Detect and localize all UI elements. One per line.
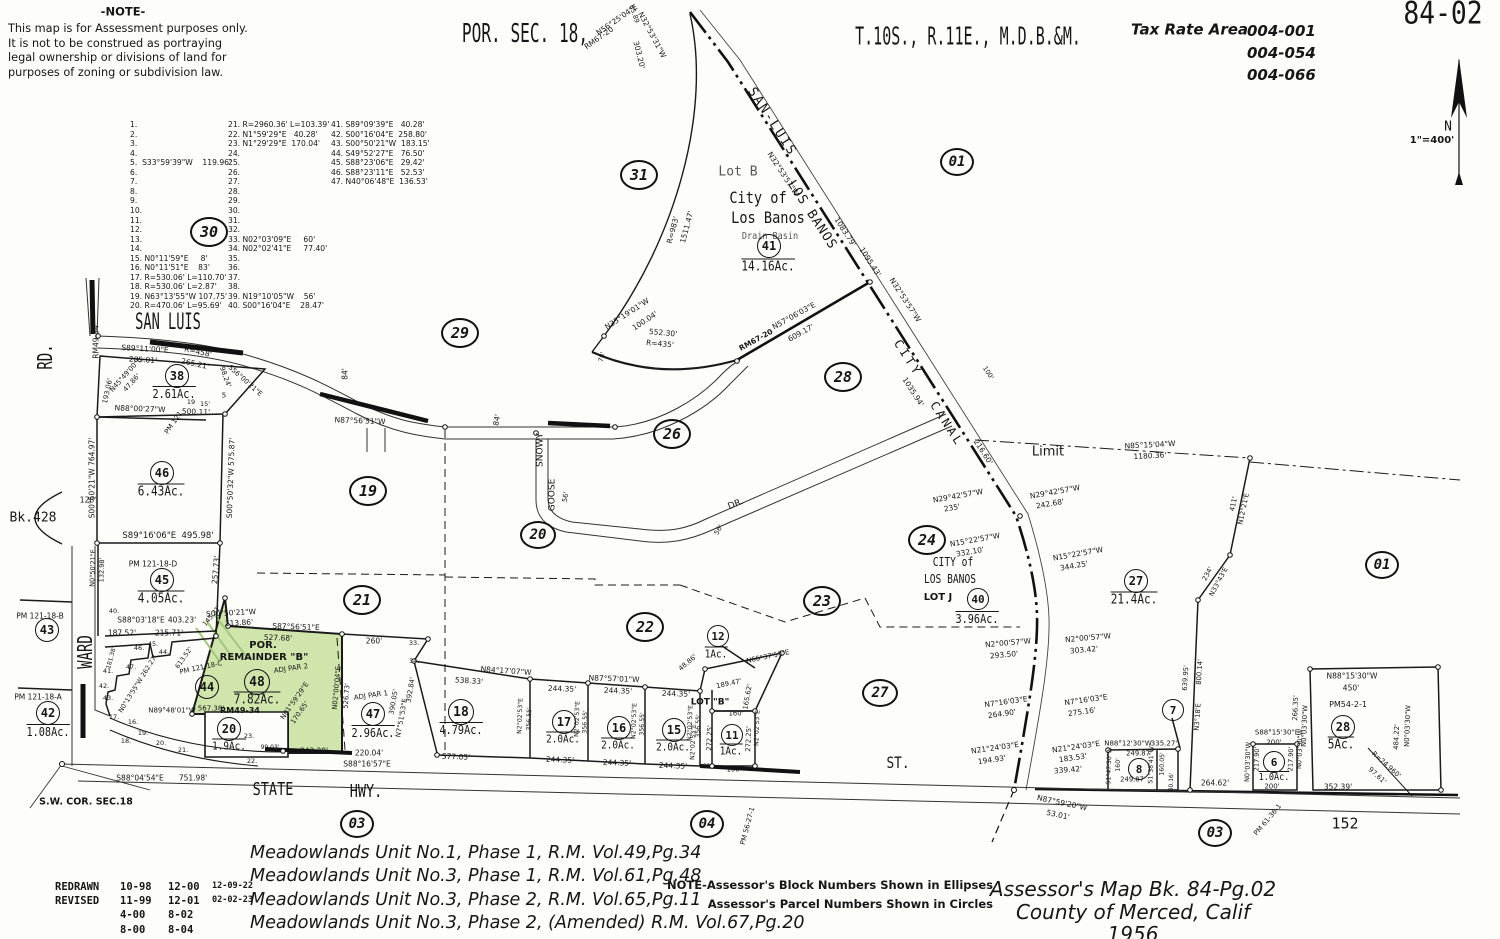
curve-table-row: 16. N0°11'51"E 83' <box>130 264 210 272</box>
map-label: 577.05' <box>442 753 471 761</box>
map-label: 244.35' <box>546 756 575 764</box>
map-label: 2.61Ac. <box>153 386 196 400</box>
map-label: 113.86' <box>225 619 254 628</box>
curve-table-row: 44. S49°52'27"E 76.50' <box>331 150 425 158</box>
curve-table-row: 45. S88°23'06"E 29.42' <box>331 159 425 167</box>
map-label: PM 121-18-A <box>14 693 62 701</box>
curve-table-row: 8. <box>130 188 137 196</box>
note-heading: -NOTE- <box>101 6 146 18</box>
map-label: Bk.428 <box>10 512 57 525</box>
parcel-number-circle: 6 <box>1263 751 1285 773</box>
curve-table-row: 27. <box>228 178 240 186</box>
revision-cell: REDRAWN <box>55 881 99 893</box>
map-label: 500.11' <box>182 408 211 416</box>
map-label: 44. <box>159 649 169 656</box>
map-label: 200' <box>1264 784 1279 791</box>
map-label: 80.16' <box>1169 772 1176 791</box>
map-label: SAN LUIS <box>135 312 201 334</box>
map-label: 356.55' <box>526 707 533 731</box>
map-label: N0°03'30"W <box>1244 742 1252 782</box>
tax-rate-area-value: 004-066 <box>1247 68 1316 83</box>
map-label: 352.39' <box>1324 783 1352 791</box>
map-label: 217.90' <box>1253 747 1260 772</box>
map-label: PM54-2-1 <box>1329 701 1367 709</box>
block-number-ellipse: 26 <box>653 419 691 449</box>
curve-table-row: 19. N63°13'55"W 107.75' <box>130 293 227 301</box>
map-label: N2°02'53"E <box>517 698 524 734</box>
block-number-ellipse: 21 <box>343 585 381 615</box>
map-label: PM 121-18-D <box>129 560 177 568</box>
map-label: S89°16'06"E 495.98' <box>122 532 213 541</box>
tax-rate-area-value: 004-054 <box>1247 46 1316 61</box>
map-label: LOT "B" <box>691 699 730 708</box>
map-label: 128' <box>80 496 96 504</box>
block-number-ellipse: 01 <box>1365 551 1399 579</box>
map-label: 244.35' <box>662 690 691 698</box>
curve-table-row: 18. R=530.06' L=2.87' <box>130 283 217 291</box>
parcel-number-circle: 16 <box>607 716 631 740</box>
subdivision-reference: Meadowlands Unit No.3, Phase 1, R.M. Vol… <box>250 866 701 886</box>
map-label: 5 <box>222 393 226 400</box>
map-label: 20. <box>156 740 166 747</box>
parcel-number-circle: 17 <box>552 710 576 734</box>
map-label: Los Banos <box>731 210 805 226</box>
map-label: 160.05' <box>1159 752 1166 776</box>
map-label: S88°15'30"E <box>1255 730 1299 737</box>
map-label: 4.05Ac. <box>138 591 185 606</box>
curve-table-row: 13. <box>130 236 142 244</box>
curve-table-row: 24. <box>228 150 240 158</box>
curve-table-row: 28. <box>228 188 240 196</box>
block-number-ellipse: 28 <box>824 362 862 392</box>
map-label: REMAINDER "B" <box>220 653 309 663</box>
curve-table-row: 31. <box>228 217 240 225</box>
curve-table-row: 25. <box>228 159 240 167</box>
map-label: N0°03'30"W <box>1404 705 1412 747</box>
revision-cell: REVISED <box>55 895 99 907</box>
curve-table-row: 6. <box>130 169 137 177</box>
block-number-ellipse: 22 <box>626 612 664 642</box>
map-label: 1180.36' <box>1133 451 1166 460</box>
map-label: 751.98' <box>179 774 207 782</box>
curve-table-row: 37. <box>228 274 240 282</box>
curve-table-row: 3. <box>130 140 137 148</box>
map-label: 84' <box>492 414 501 427</box>
map-label: S1°47'30"W <box>1106 747 1114 785</box>
parcel-number-circle: 38 <box>165 364 189 388</box>
north-arrow-icon <box>1451 58 1467 185</box>
curve-table-row: 7. <box>130 178 137 186</box>
map-label: N87°57'01"W <box>588 674 639 683</box>
curve-table-row: 5. S33°59'39"W 119.96' <box>130 159 231 167</box>
section-title: POR. SEC. 18, <box>462 21 588 47</box>
map-label: S88°16'57"E <box>343 760 390 768</box>
revision-cell: 02-02-23 <box>212 895 253 905</box>
map-label: 42. <box>99 683 109 690</box>
map-label: N87°56'51"W <box>334 416 385 425</box>
map-label: 244.35' <box>548 685 577 693</box>
curve-table-row: 38. <box>228 283 240 291</box>
map-label: N2°02'53"E <box>690 724 697 760</box>
map-label: S87°56'51"E <box>272 622 320 631</box>
map-label: SNOWY <box>537 433 546 467</box>
block-number-ellipse: 03 <box>1198 819 1232 847</box>
map-label: N89°48'01"W <box>148 708 196 715</box>
assessor-title-line: Assessor's Map Bk. 84-Pg.02 <box>990 877 1276 901</box>
map-label: 45. <box>148 641 158 648</box>
map-label: 264.62' <box>1201 779 1229 787</box>
parcel-number-circle: 28 <box>1331 715 1355 739</box>
curve-table-row: 2. <box>130 131 137 139</box>
curve-table-row: 29. <box>228 197 240 205</box>
curve-table-row: 46. S88°23'11"E 52.53' <box>331 169 425 177</box>
parcel-number-circle: 8 <box>1128 758 1150 780</box>
block-number-ellipse: 24 <box>908 525 946 555</box>
map-label: 244.35' <box>604 687 633 695</box>
assessor-map-page: -NOTE- This map is for Assessment purpos… <box>0 0 1500 939</box>
map-label: S.W. COR. SEC.18 <box>39 797 133 807</box>
map-label: 84' <box>341 368 349 380</box>
map-label: 34. <box>409 658 419 665</box>
curve-table-row: 20. R=470.06' L=95.69' <box>130 302 222 310</box>
parcel-number-circle: 18 <box>448 699 474 725</box>
note-line: legal ownership or divisions of land for <box>8 51 227 64</box>
curve-table-row: 41. S89°09'39"E 40.28' <box>331 121 425 129</box>
map-label: Limit <box>1032 446 1064 459</box>
curve-table-row: 35. <box>228 255 240 263</box>
map-label: 21. <box>178 747 188 754</box>
map-label: 552.30' <box>649 328 678 338</box>
map-label: 220.04' <box>355 749 383 757</box>
map-label: STATE <box>253 781 294 799</box>
revision-cell: 8-00 <box>120 924 145 936</box>
page-number: 84-02 <box>1403 0 1482 30</box>
parcel-number-circle: 15 <box>662 718 686 742</box>
map-label: RM49-34 <box>220 707 260 715</box>
map-label: S88°04'54"E <box>116 774 163 782</box>
map-label: 450' <box>1343 684 1359 692</box>
block-number-ellipse: 30 <box>190 217 228 247</box>
ellipse-circle-note-line: Assessor's Parcel Numbers Shown in Circl… <box>708 897 993 911</box>
map-label: 15' <box>200 401 210 408</box>
map-label: 356.55' <box>582 710 589 734</box>
map-label: 152 <box>1331 817 1358 832</box>
subdivision-reference: Meadowlands Unit No.1, Phase 1, R.M. Vol… <box>250 843 701 863</box>
map-label: LOT J <box>924 593 953 603</box>
block-number-ellipse: 29 <box>441 318 479 348</box>
curve-table-row: 1. <box>130 121 137 129</box>
revision-cell: 10-98 <box>120 881 152 893</box>
map-label: Lot B <box>718 166 757 179</box>
map-lines <box>0 0 1500 939</box>
parcel-number-circle: 48 <box>244 669 270 695</box>
block-number-ellipse: 27 <box>862 679 898 707</box>
parcel-number-circle: 27 <box>1124 569 1148 593</box>
parcel-number-circle: 20 <box>217 717 241 741</box>
map-label: ST. <box>886 755 909 771</box>
curve-table-row: 9. <box>130 197 137 205</box>
map-label: 43. <box>103 695 113 702</box>
map-label: 260' <box>366 637 382 645</box>
curve-table-row: 36. <box>228 264 240 272</box>
map-label: CITY of <box>933 556 973 568</box>
map-label: 1Ac. <box>705 647 728 660</box>
curve-table-row: 23. N1°29'29"E 170.04' <box>228 140 320 148</box>
curve-table-row: 10. <box>130 207 142 215</box>
scale-label: 1"=400' <box>1410 136 1454 146</box>
note-line: This map is for Assessment purposes only… <box>8 22 248 35</box>
curve-table-row: 17. R=530.06' L=110.70' <box>130 274 226 282</box>
map-label: 187.52' <box>108 629 136 637</box>
curve-table-row: 42. S00°16'04"E 258.80' <box>331 131 427 139</box>
curve-table-row: 21. R=2960.36' L=103.39' <box>228 121 329 129</box>
map-label: N88°15'30"W <box>1327 672 1378 680</box>
curve-table-row: 33. N02°03'09"E 60' <box>228 236 315 244</box>
map-label: 6.43Ac. <box>138 484 185 499</box>
revision-cell: 8-04 <box>168 924 193 936</box>
revision-cell: 4-00 <box>120 909 145 921</box>
subdivision-reference: Meadowlands Unit No.3, Phase 2, (Amended… <box>250 913 805 933</box>
curve-table-row: 30. <box>228 207 240 215</box>
map-label: 484.22' <box>1393 724 1401 750</box>
revision-cell: 11-99 <box>120 895 152 907</box>
block-number-ellipse: 23 <box>803 586 841 616</box>
map-label: 46. <box>134 645 144 652</box>
map-label: 60' <box>702 764 711 770</box>
curve-table-row: 12. <box>130 226 142 234</box>
map-label: S00°50'21"W 764.97' <box>88 438 96 519</box>
map-label: 47. <box>126 664 136 671</box>
map-label: 356.55' <box>639 712 646 736</box>
map-label: 22. <box>247 758 257 765</box>
revision-cell: 12-01 <box>168 895 200 907</box>
map-label: 16. <box>128 719 138 726</box>
map-label: 160' <box>1116 758 1123 772</box>
map-label: 538.33' <box>455 676 484 685</box>
tax-rate-area-label: Tax Rate Area <box>1131 23 1248 38</box>
map-label: 266.35' <box>1292 695 1300 721</box>
map-label: 17. <box>109 714 119 721</box>
map-label: RM49-34 <box>92 325 100 358</box>
parcel-number-circle: 41 <box>757 234 781 258</box>
assessor-title-line: County of Merced, Calif <box>1016 900 1250 924</box>
map-label: HWY. <box>350 783 383 801</box>
curve-table-row: 43. S00°50'21"W 183.15' <box>331 140 430 148</box>
map-label: WARD <box>75 635 95 669</box>
curve-table-row: 32. <box>228 226 240 234</box>
block-number-ellipse: 31 <box>620 160 658 190</box>
curve-table-row: 40. S00°16'04"E 28.47' <box>228 302 324 310</box>
map-label: 21.4Ac. <box>1111 592 1158 607</box>
map-label: 160' <box>727 767 742 774</box>
map-label: 19. <box>138 730 148 737</box>
parcel-number-circle: 46 <box>150 461 174 485</box>
map-label: 217.90' <box>1287 747 1294 772</box>
map-label: GOOSE <box>549 479 558 512</box>
parcel-number-circle: 11 <box>721 724 743 746</box>
parcel-number-circle: 44 <box>195 675 219 699</box>
note-line: It is not to be construed as portraying <box>8 37 222 50</box>
curve-table-row: 14. <box>130 245 142 253</box>
parcel-number-circle: 7 <box>1162 699 1184 721</box>
block-number-ellipse: 19 <box>349 476 387 506</box>
map-label: 272.25' <box>745 726 753 752</box>
curve-table-row: 47. N40°06'48"E 136.53' <box>331 178 428 186</box>
revision-cell: 12-00 <box>168 881 200 893</box>
curve-table-row: 22. N1°59'29"E 40.28' <box>228 131 318 139</box>
map-label: LOS BANOS <box>924 573 976 585</box>
map-label: S88°03'18"E <box>117 616 164 624</box>
parcel-number-circle: 12 <box>707 625 729 647</box>
map-label: N0°03'30"W <box>1301 705 1309 747</box>
map-label: 567.38' <box>198 706 224 713</box>
map-label: 18. <box>121 738 131 745</box>
curve-table-row: 26. <box>228 169 240 177</box>
parcel-number-circle: 42 <box>36 701 60 725</box>
map-label: 215.71' <box>155 629 183 637</box>
map-label: 200' <box>1266 740 1281 747</box>
note-line: purposes of zoning or subdivision law. <box>8 66 223 79</box>
parcel-number-circle: 47 <box>361 702 385 726</box>
curve-table-row: 11. <box>130 217 142 225</box>
tax-rate-area-value: 004-001 <box>1247 24 1316 39</box>
map-label: 1.08Ac. <box>27 724 70 738</box>
curve-table-row: 15. N0°11'59"E 8' <box>130 255 208 263</box>
map-label: 33. <box>409 640 419 647</box>
map-label: 403.23' <box>168 616 196 624</box>
curve-table-row: 4. <box>130 150 137 158</box>
map-label: 244.35' <box>659 762 688 770</box>
subdivision-reference: Meadowlands Unit No.3, Phase 2, R.M. Vol… <box>250 890 701 910</box>
block-number-ellipse: 20 <box>520 521 556 549</box>
map-label: 2.96Ac. <box>352 725 395 739</box>
map-label: 23. <box>244 733 254 740</box>
map-label: POR. <box>249 641 277 651</box>
map-label: N2°02'53"E <box>754 710 761 746</box>
map-label: N0°50'21"E <box>89 549 97 587</box>
north-label: N <box>1444 121 1452 134</box>
map-label: N88°00'27"W <box>114 404 165 413</box>
ellipse-circle-note-line: NOTE-Assessor's Block Numbers Shown in E… <box>667 878 993 892</box>
block-number-ellipse: 04 <box>690 810 724 838</box>
map-label: City of <box>729 190 786 206</box>
revision-cell: 12-09-22 <box>212 881 253 891</box>
map-label: 3.96Ac. <box>956 611 999 625</box>
curve-table-row: 34. N02°02'41"E 77.40' <box>228 245 327 253</box>
map-label: 272.25' <box>706 725 714 751</box>
township-title: T.10S., R.11E., M.D.B.&M. <box>855 24 1081 49</box>
block-number-ellipse: 03 <box>340 810 374 838</box>
map-label: 342.29' <box>300 747 328 755</box>
parcel-number-circle: 43 <box>35 618 59 642</box>
map-label: 160' <box>729 711 744 718</box>
assessor-title-line: 1956 <box>1108 922 1159 939</box>
map-label: 244.35' <box>603 759 632 767</box>
parcel-number-circle: 40 <box>967 588 989 610</box>
map-label: 40. <box>109 608 119 615</box>
parcel-number-circle: 45 <box>150 568 174 592</box>
map-label: 132.98' <box>98 558 105 583</box>
map-label: 99.03' <box>261 745 280 751</box>
map-label: 14.16Ac. <box>741 259 794 274</box>
revision-cell: 8-02 <box>168 909 193 921</box>
map-label: RD. <box>35 344 55 369</box>
map-label: R=435' <box>646 339 674 349</box>
curve-table-row: 39. N19°10'05"W 56' <box>228 293 315 301</box>
block-number-ellipse: 01 <box>940 148 974 176</box>
